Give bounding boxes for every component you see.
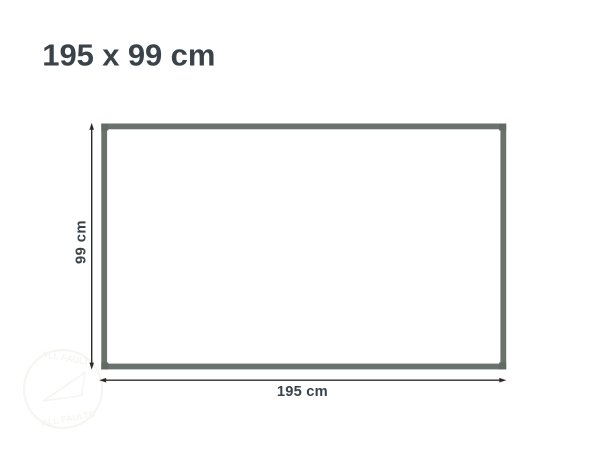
svg-text:195 cm: 195 cm xyxy=(277,384,328,400)
svg-text:195 x 99 cm: 195 x 99 cm xyxy=(42,38,215,73)
svg-text:99 cm: 99 cm xyxy=(74,220,90,264)
